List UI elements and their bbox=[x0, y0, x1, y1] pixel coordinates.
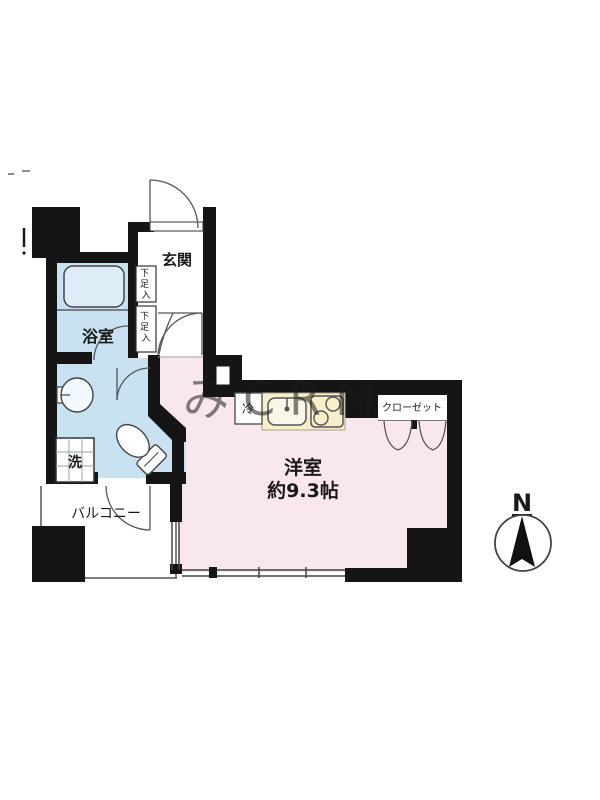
watermark-text: みCRM bbox=[183, 372, 389, 426]
print-artifacts bbox=[8, 171, 30, 255]
wall-bathroom-bottom bbox=[46, 352, 92, 364]
wall-genkan-right bbox=[203, 207, 216, 380]
wall-mainroom-left bbox=[170, 476, 182, 522]
shoe-lower-char-1: 下 bbox=[140, 312, 149, 322]
genkan-label: 玄関 bbox=[162, 251, 192, 269]
entrance-threshold bbox=[150, 222, 203, 231]
wall-pillar-top-left bbox=[32, 207, 80, 258]
shoe-lower-char-2: 足 bbox=[140, 322, 149, 333]
shoe-upper-char-3: 入 bbox=[141, 290, 150, 301]
washer-label: 洗 bbox=[68, 454, 82, 471]
main-room-size-label: 約9.3帖 bbox=[267, 479, 339, 502]
refrigerator-label: 冷 bbox=[242, 402, 254, 416]
hall-door-arc-small bbox=[159, 313, 173, 354]
shoe-box-lower-label: 下 足 入 bbox=[140, 312, 152, 344]
wall-washroom-right-upper bbox=[148, 355, 160, 410]
compass-north-label: N bbox=[512, 489, 532, 517]
artifact-mark-dot bbox=[22, 251, 25, 254]
wall-washroom-right-lower bbox=[172, 428, 184, 480]
shoe-upper-char-1: 下 bbox=[140, 269, 149, 279]
floor-plan-svg: みCRM 玄関 浴室 下 足 入 下 足 入 洗 冷 クローゼット バルコニー … bbox=[0, 0, 600, 800]
wall-pillar-bottom-right bbox=[407, 528, 462, 582]
main-room-name-label: 洋室 bbox=[284, 456, 322, 479]
entrance-door-arc bbox=[150, 180, 198, 228]
wall-pillar-bottom-left bbox=[32, 526, 85, 582]
balcony-label: バルコニー bbox=[71, 506, 141, 522]
bathtub bbox=[64, 266, 124, 307]
compass: N bbox=[495, 489, 551, 571]
shoe-upper-char-2: 足 bbox=[140, 279, 149, 290]
shoe-box-upper-label: 下 足 入 bbox=[140, 269, 152, 301]
closet-label: クローゼット bbox=[382, 402, 442, 414]
wall-bathroom-top bbox=[46, 252, 138, 263]
floor-plan-page: みCRM 玄関 浴室 下 足 入 下 足 入 洗 冷 クローゼット バルコニー … bbox=[0, 0, 600, 800]
bathroom-label: 浴室 bbox=[82, 327, 114, 346]
shoe-lower-char-3: 入 bbox=[141, 333, 150, 344]
south-window-mullion-block bbox=[209, 567, 217, 578]
